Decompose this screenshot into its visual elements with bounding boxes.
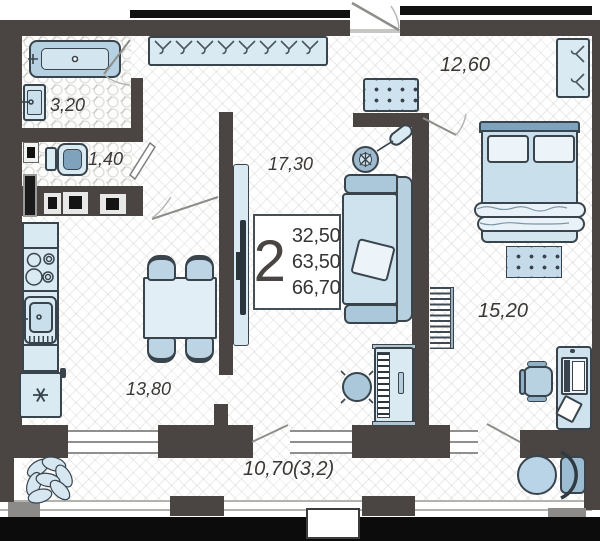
sofa-back [396, 176, 413, 322]
sofa-armrest-top [344, 174, 400, 194]
vent-shaft-5 [106, 198, 119, 210]
laptop-keyboard [572, 361, 585, 391]
floor-lamp-hub [359, 153, 372, 166]
dishwasher-grill [29, 336, 53, 343]
piano-handle [398, 372, 404, 394]
wall-left-lower [0, 458, 14, 502]
entrance-threshold [350, 29, 400, 33]
outer-wall-bottom [0, 517, 600, 541]
bed-pillow-2 [533, 135, 575, 163]
floor-plan: 2 32,50 63,50 66,70 [0, 0, 600, 541]
unit-area-3: 66,70 [292, 275, 341, 301]
dining-chair-1 [147, 255, 176, 281]
balcony-pier-2 [362, 496, 415, 516]
vent-shaft-1 [27, 147, 35, 158]
balcony-notch [306, 508, 360, 539]
adjacent-structure-top-left [130, 10, 350, 18]
vent-shaft-4 [69, 196, 82, 209]
doormat [363, 78, 419, 112]
kitchen-window [68, 430, 158, 454]
dining-chair-4 [185, 337, 214, 363]
toilet-tank [45, 147, 57, 171]
counter-divider-2 [22, 290, 59, 292]
wall-balcony-3 [352, 425, 450, 458]
kitchen-area-label: 13,80 [126, 379, 171, 400]
tv-mount [236, 252, 240, 280]
bedroom-area-label: 15,20 [478, 300, 528, 323]
piano-stool [342, 372, 372, 402]
wall-bath-jamb [131, 78, 143, 130]
fridge-handle [60, 368, 66, 378]
laptop-screen [564, 360, 570, 392]
sofa-armrest-bottom [344, 304, 400, 324]
dining-chair-3 [147, 337, 176, 363]
bedroom-rug [506, 246, 562, 278]
wall-balcony-1 [0, 425, 68, 458]
bathroom-area-label: 3,20 [50, 95, 85, 116]
wall-top-left [0, 20, 350, 36]
kitchen-sink-basin [29, 302, 53, 333]
desk-chair-seat [523, 366, 553, 397]
fridge [19, 372, 62, 418]
toilet-area-label: 1,40 [88, 149, 123, 170]
balcony-door-leaf [214, 404, 228, 425]
unit-summary-box: 2 32,50 63,50 66,70 [253, 214, 341, 310]
hallway-area-label: 12,60 [440, 54, 490, 77]
bedroom-window [450, 430, 478, 454]
desk-chair-arm-top [527, 361, 547, 367]
wall-balcony-4 [520, 430, 592, 458]
tv [240, 220, 246, 315]
balcony-railing-outer [0, 500, 592, 502]
wall-kitchen-living [219, 112, 233, 375]
balcony-pier-1 [170, 496, 224, 516]
radiator-spine [450, 287, 454, 349]
desk-chair-arm-bottom [527, 396, 547, 402]
balcony-chair [560, 456, 586, 494]
balcony-table [517, 455, 557, 495]
wall-top-right [400, 20, 592, 36]
desk-knob [570, 349, 575, 353]
vent-shaft-2 [23, 174, 37, 217]
wall-balcony-2 [158, 425, 253, 458]
living-area-label: 17,30 [268, 154, 313, 175]
bed-blanket-roll-2 [477, 216, 585, 232]
dining-table [143, 277, 217, 339]
unit-areas: 32,50 63,50 66,70 [292, 223, 341, 301]
balcony-railing-inner [0, 509, 592, 511]
living-window [290, 430, 352, 454]
balcony-pier-left [8, 502, 40, 517]
unit-area-2: 63,50 [292, 249, 341, 275]
balcony-area-label: 10,70(3,2) [243, 458, 334, 481]
piano-keys [377, 352, 390, 418]
toilet-bowl-inner [63, 149, 82, 170]
bed-pillow-1 [487, 135, 529, 163]
counter-divider-3 [22, 344, 59, 346]
unit-area-1: 32,50 [292, 223, 341, 249]
bathroom-sink-basin [27, 90, 42, 115]
bedroom-wardrobe [556, 38, 590, 98]
radiator [430, 287, 451, 349]
wall-bath-toilet [22, 128, 143, 142]
wall-right [592, 20, 600, 460]
counter-divider-1 [22, 247, 59, 249]
vent-shaft-3 [48, 197, 57, 209]
unit-rooms-count: 2 [254, 236, 286, 288]
door-swing-entrance [352, 3, 399, 30]
bathtub-inner [41, 48, 109, 70]
dining-chair-2 [185, 255, 214, 281]
piano-cap-bottom [372, 421, 416, 426]
desk-chair-back [519, 369, 526, 395]
hall-wardrobe [148, 36, 328, 66]
adjacent-structure-top-right [400, 6, 592, 15]
wall-living-bedroom [412, 113, 429, 458]
